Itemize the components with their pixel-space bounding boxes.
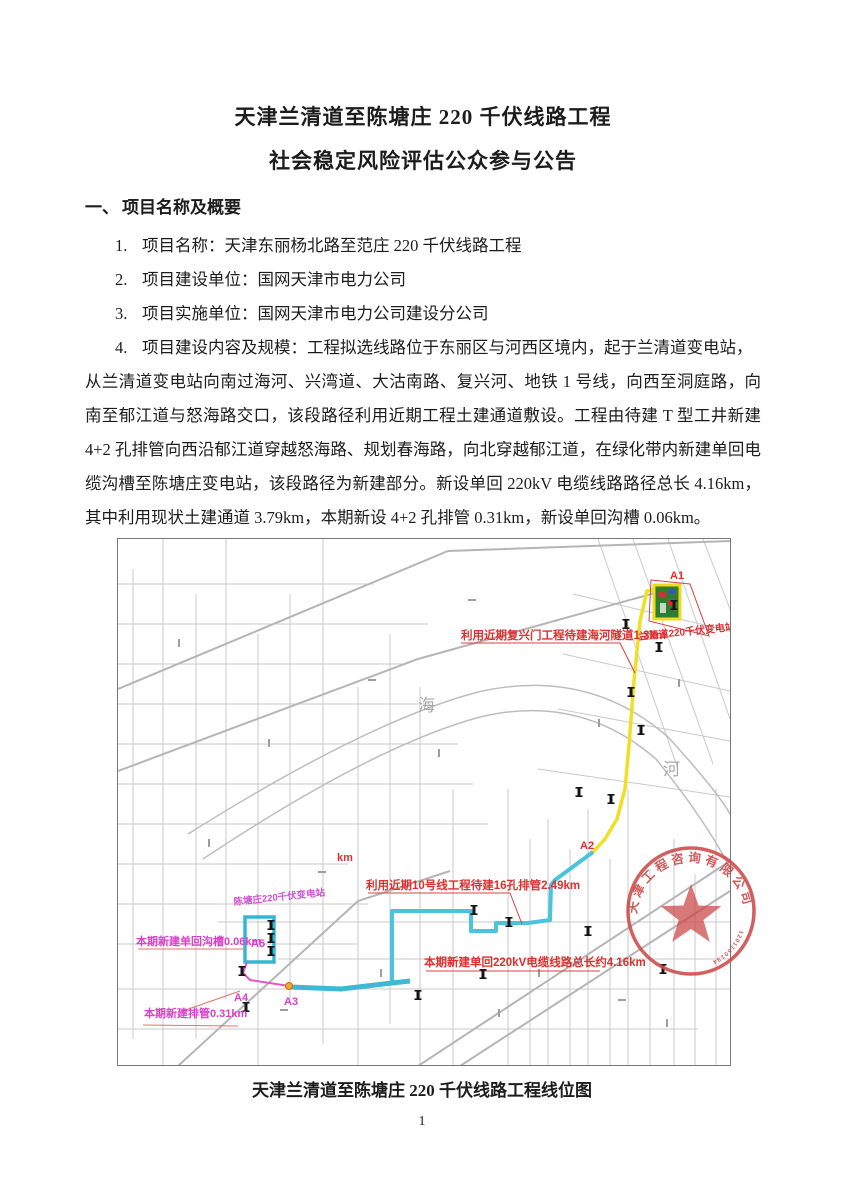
project-description-paragraph: 从兰清道变电站向南过海河、兴湾道、大沽南路、复兴河、地铁 1 号线，向西至洞庭路…	[85, 365, 761, 535]
item-number: 3.	[115, 297, 142, 331]
point-a3-label: A3	[284, 996, 298, 1008]
point-a2-label: A2	[580, 840, 594, 852]
item-text: 项目建设内容及规模：工程拟选线路位于东丽区与河西区境内，起于兰清道变电站，	[142, 338, 753, 357]
haihe-river	[188, 685, 730, 864]
route-map-figure: 海 河 利用近期复兴门工程待建海河隧道1.3km 兰清道220千伏变电站 利用近…	[117, 538, 731, 1066]
document-body: 天津兰清道至陈塘庄 220 千伏线路工程 社会稳定风险评估公众参与公告 一、项目…	[85, 0, 761, 535]
section-title: 项目名称及概要	[122, 198, 241, 217]
item-number: 1.	[115, 229, 142, 263]
list-item: 2.项目建设单位：国网天津市电力公司	[85, 263, 761, 297]
river-label-he: 河	[663, 760, 680, 779]
major-roads	[118, 541, 730, 1065]
tunnel-note-label: 利用近期复兴门工程待建海河隧道1.3km	[460, 628, 666, 642]
duct-note-label: 本期新建排管0.31km	[144, 1006, 248, 1020]
scale-km-label: km	[337, 852, 353, 864]
item-text: 项目名称：天津东丽杨北路至范庄 220 千伏线路工程	[142, 236, 522, 255]
item-number: 2.	[115, 263, 142, 297]
list-item: 1.项目名称：天津东丽杨北路至范庄 220 千伏线路工程	[85, 229, 761, 263]
list-item: 4.项目建设内容及规模：工程拟选线路位于东丽区与河西区境内，起于兰清道变电站，	[85, 331, 761, 365]
lanqing-station-label: 兰清道220千伏变电站	[638, 620, 730, 643]
section-number: 一、	[85, 196, 122, 220]
item-text: 项目建设单位：国网天津市电力公司	[142, 270, 406, 289]
doc-title-line1: 天津兰清道至陈塘庄 220 千伏线路工程	[85, 0, 761, 132]
item-text: 项目实施单位：国网天津市电力公司建设分公司	[142, 304, 489, 323]
route-duct-magenta	[243, 962, 289, 986]
point-a5-label: A5	[251, 938, 265, 950]
route-map-svg: 海 河 利用近期复兴门工程待建海河隧道1.3km 兰清道220千伏变电站 利用近…	[118, 539, 730, 1065]
a3-node-dot	[286, 983, 293, 990]
route-cable-cyan-west	[290, 981, 410, 989]
point-a4-label: A4	[234, 992, 249, 1004]
project-info-list: 1.项目名称：天津东丽杨北路至范庄 220 千伏线路工程 2.项目建设单位：国网…	[85, 229, 761, 365]
list-item: 3.项目实施单位：国网天津市电力公司建设分公司	[85, 297, 761, 331]
document-page: 天津兰清道至陈塘庄 220 千伏线路工程 社会稳定风险评估公众参与公告 一、项目…	[0, 0, 844, 1200]
section-heading: 一、项目名称及概要	[85, 196, 761, 220]
item-number: 4.	[115, 331, 142, 365]
page-number: 1	[0, 1114, 844, 1130]
trench-note-label: 本期新建单回沟槽0.06km	[136, 934, 262, 948]
line10-note-label: 利用近期10号线工程待建16孔排管2.49km	[365, 878, 580, 892]
river-label-hai: 海	[418, 696, 435, 715]
cable-total-note-label: 本期新建单回220kV电缆线路总长约4.16km	[424, 955, 646, 969]
chentangzhuang-station-label: 陈塘庄220千伏变电站	[233, 886, 326, 908]
point-a1-label: A1	[670, 570, 684, 582]
street-grid	[118, 539, 730, 1065]
doc-title-line2: 社会稳定风险评估公众参与公告	[85, 146, 761, 176]
map-caption: 天津兰清道至陈塘庄 220 千伏线路工程线位图	[0, 1076, 844, 1101]
magenta-annotations: 本期新建单回沟槽0.06km 本期新建排管0.31km A5 A4 A3 陈塘庄…	[136, 886, 326, 1020]
